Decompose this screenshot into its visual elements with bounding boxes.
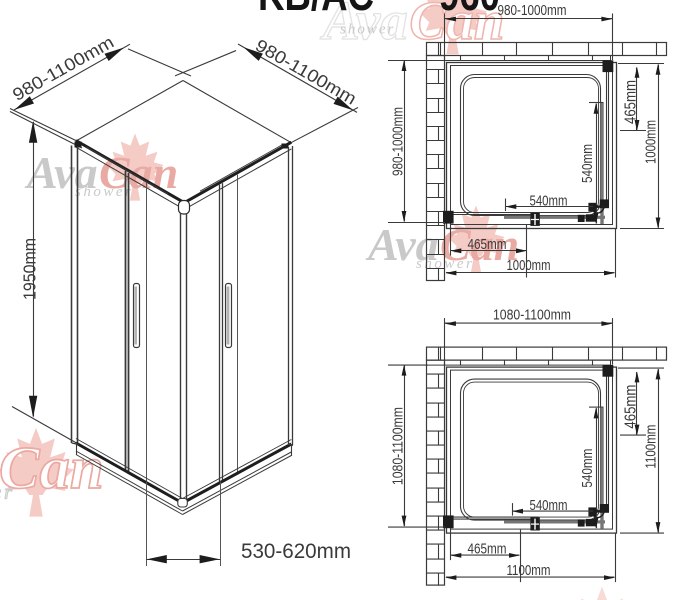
- svg-text:1100mm: 1100mm: [643, 425, 660, 469]
- svg-text:540mm: 540mm: [579, 449, 596, 488]
- svg-text:1000mm: 1000mm: [507, 257, 551, 274]
- svg-text:980-1000mm: 980-1000mm: [498, 3, 567, 19]
- svg-text:960: 960: [439, 0, 500, 20]
- svg-text:465mm: 465mm: [468, 236, 507, 253]
- svg-text:540mm: 540mm: [579, 144, 596, 183]
- svg-text:KB/AC: KB/AC: [258, 0, 374, 20]
- svg-text:1950mm: 1950mm: [20, 238, 40, 300]
- svg-text:465mm: 465mm: [623, 385, 640, 429]
- svg-text:1080-1100mm: 1080-1100mm: [391, 407, 407, 485]
- svg-text:shower: shower: [75, 184, 133, 200]
- svg-text:1000mm: 1000mm: [643, 120, 660, 164]
- svg-text:465mm: 465mm: [623, 80, 640, 124]
- svg-text:540mm: 540mm: [530, 497, 568, 514]
- svg-text:shower: shower: [416, 256, 474, 272]
- svg-text:540mm: 540mm: [530, 192, 568, 209]
- svg-text:shower: shower: [0, 482, 15, 504]
- svg-text:1100mm: 1100mm: [507, 562, 551, 579]
- svg-text:shower: shower: [340, 22, 395, 38]
- svg-text:980-1000mm: 980-1000mm: [391, 107, 407, 176]
- svg-text:530-620mm: 530-620mm: [241, 540, 351, 563]
- svg-text:1080-1100mm: 1080-1100mm: [493, 308, 571, 324]
- svg-text:465mm: 465mm: [468, 541, 507, 558]
